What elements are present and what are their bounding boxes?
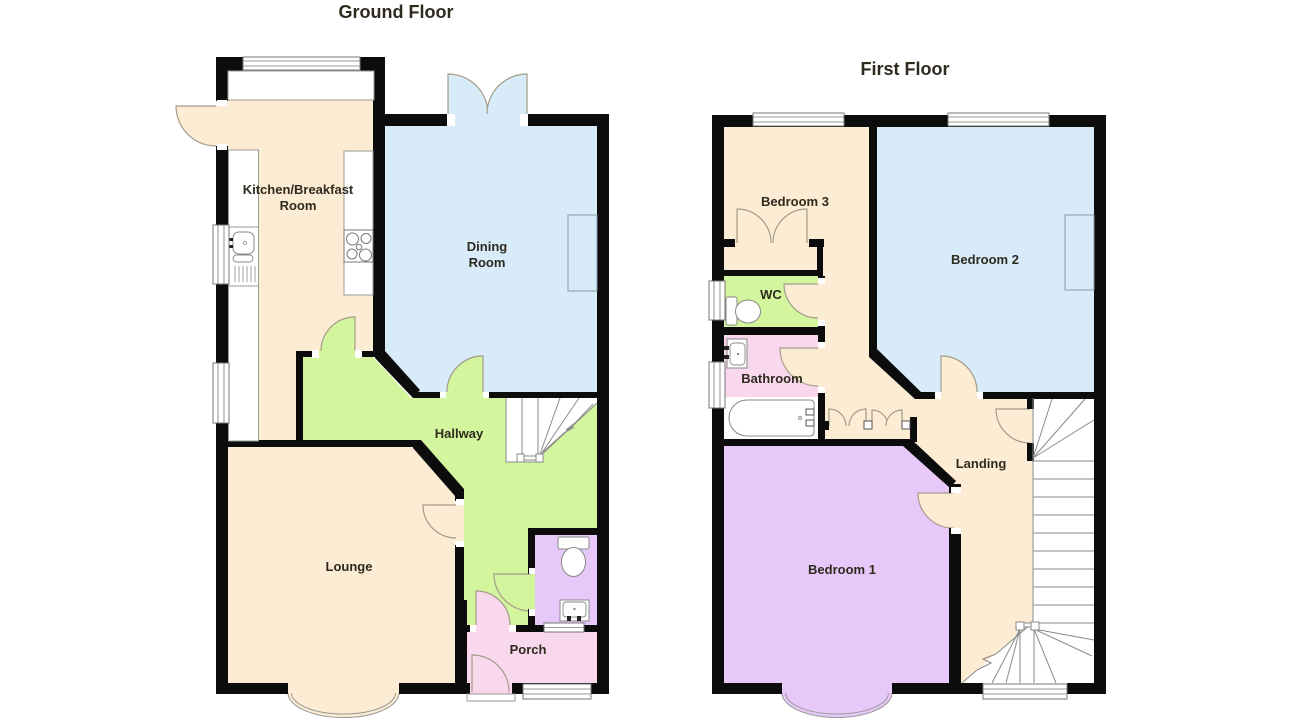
svg-text:Lounge: Lounge bbox=[326, 559, 373, 574]
svg-text:Ground Floor: Ground Floor bbox=[339, 2, 454, 22]
svg-text:Room: Room bbox=[469, 255, 506, 270]
svg-text:Bedroom 3: Bedroom 3 bbox=[761, 194, 829, 209]
svg-text:Bedroom 2: Bedroom 2 bbox=[951, 252, 1019, 267]
svg-text:First Floor: First Floor bbox=[861, 59, 950, 79]
svg-text:Kitchen/Breakfast: Kitchen/Breakfast bbox=[243, 182, 354, 197]
svg-text:Bedroom 1: Bedroom 1 bbox=[808, 562, 876, 577]
svg-text:Dining: Dining bbox=[467, 239, 507, 254]
svg-text:WC: WC bbox=[760, 287, 782, 302]
svg-text:Landing: Landing bbox=[956, 456, 1007, 471]
svg-text:Hallway: Hallway bbox=[435, 426, 484, 441]
svg-text:Porch: Porch bbox=[510, 642, 547, 657]
svg-text:Room: Room bbox=[280, 198, 317, 213]
svg-text:Bathroom: Bathroom bbox=[741, 371, 802, 386]
